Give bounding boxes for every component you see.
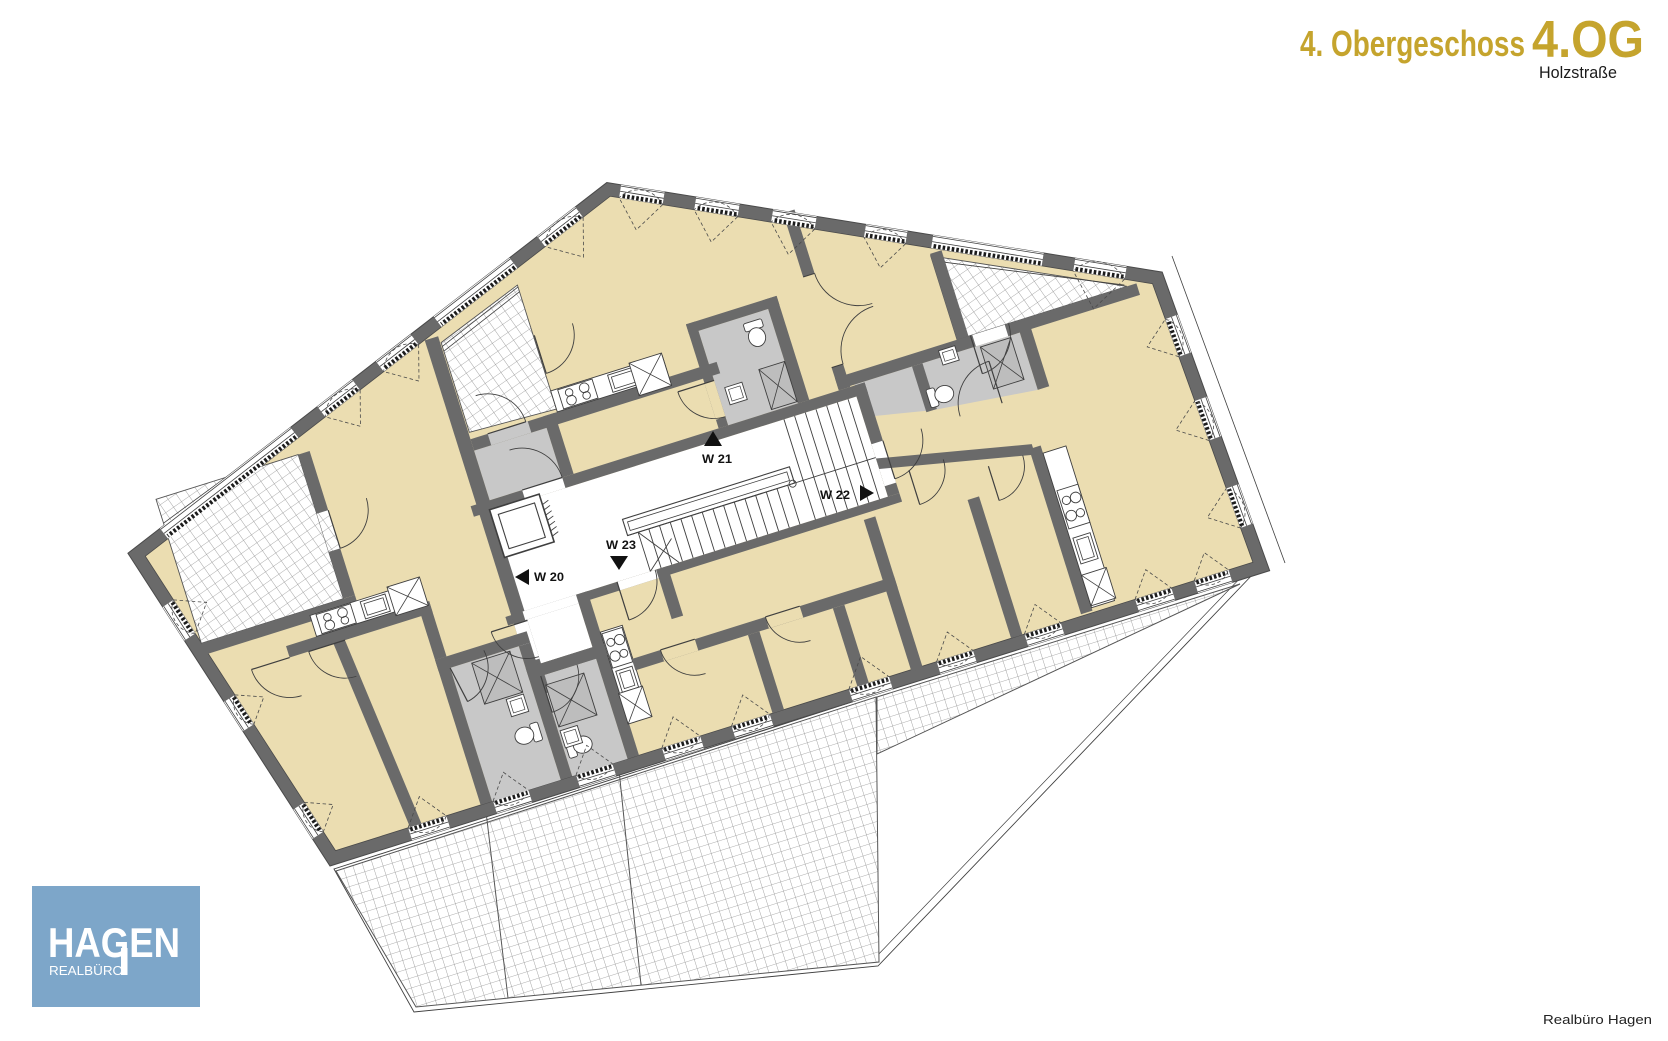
svg-text:HAGEN: HAGEN <box>48 919 180 966</box>
svg-text:REALBÜRO: REALBÜRO <box>49 963 123 978</box>
svg-text:4.OG: 4.OG <box>1532 11 1644 69</box>
svg-text:Holzstraße: Holzstraße <box>1539 64 1617 82</box>
svg-text:W 23: W 23 <box>606 540 636 552</box>
svg-text:4. Obergeschoss: 4. Obergeschoss <box>1300 23 1525 64</box>
svg-text:Realbüro Hagen: Realbüro Hagen <box>1543 1012 1652 1027</box>
svg-text:W 22: W 22 <box>820 490 850 502</box>
svg-text:W 20: W 20 <box>534 572 564 584</box>
svg-text:W 21: W 21 <box>702 454 733 466</box>
